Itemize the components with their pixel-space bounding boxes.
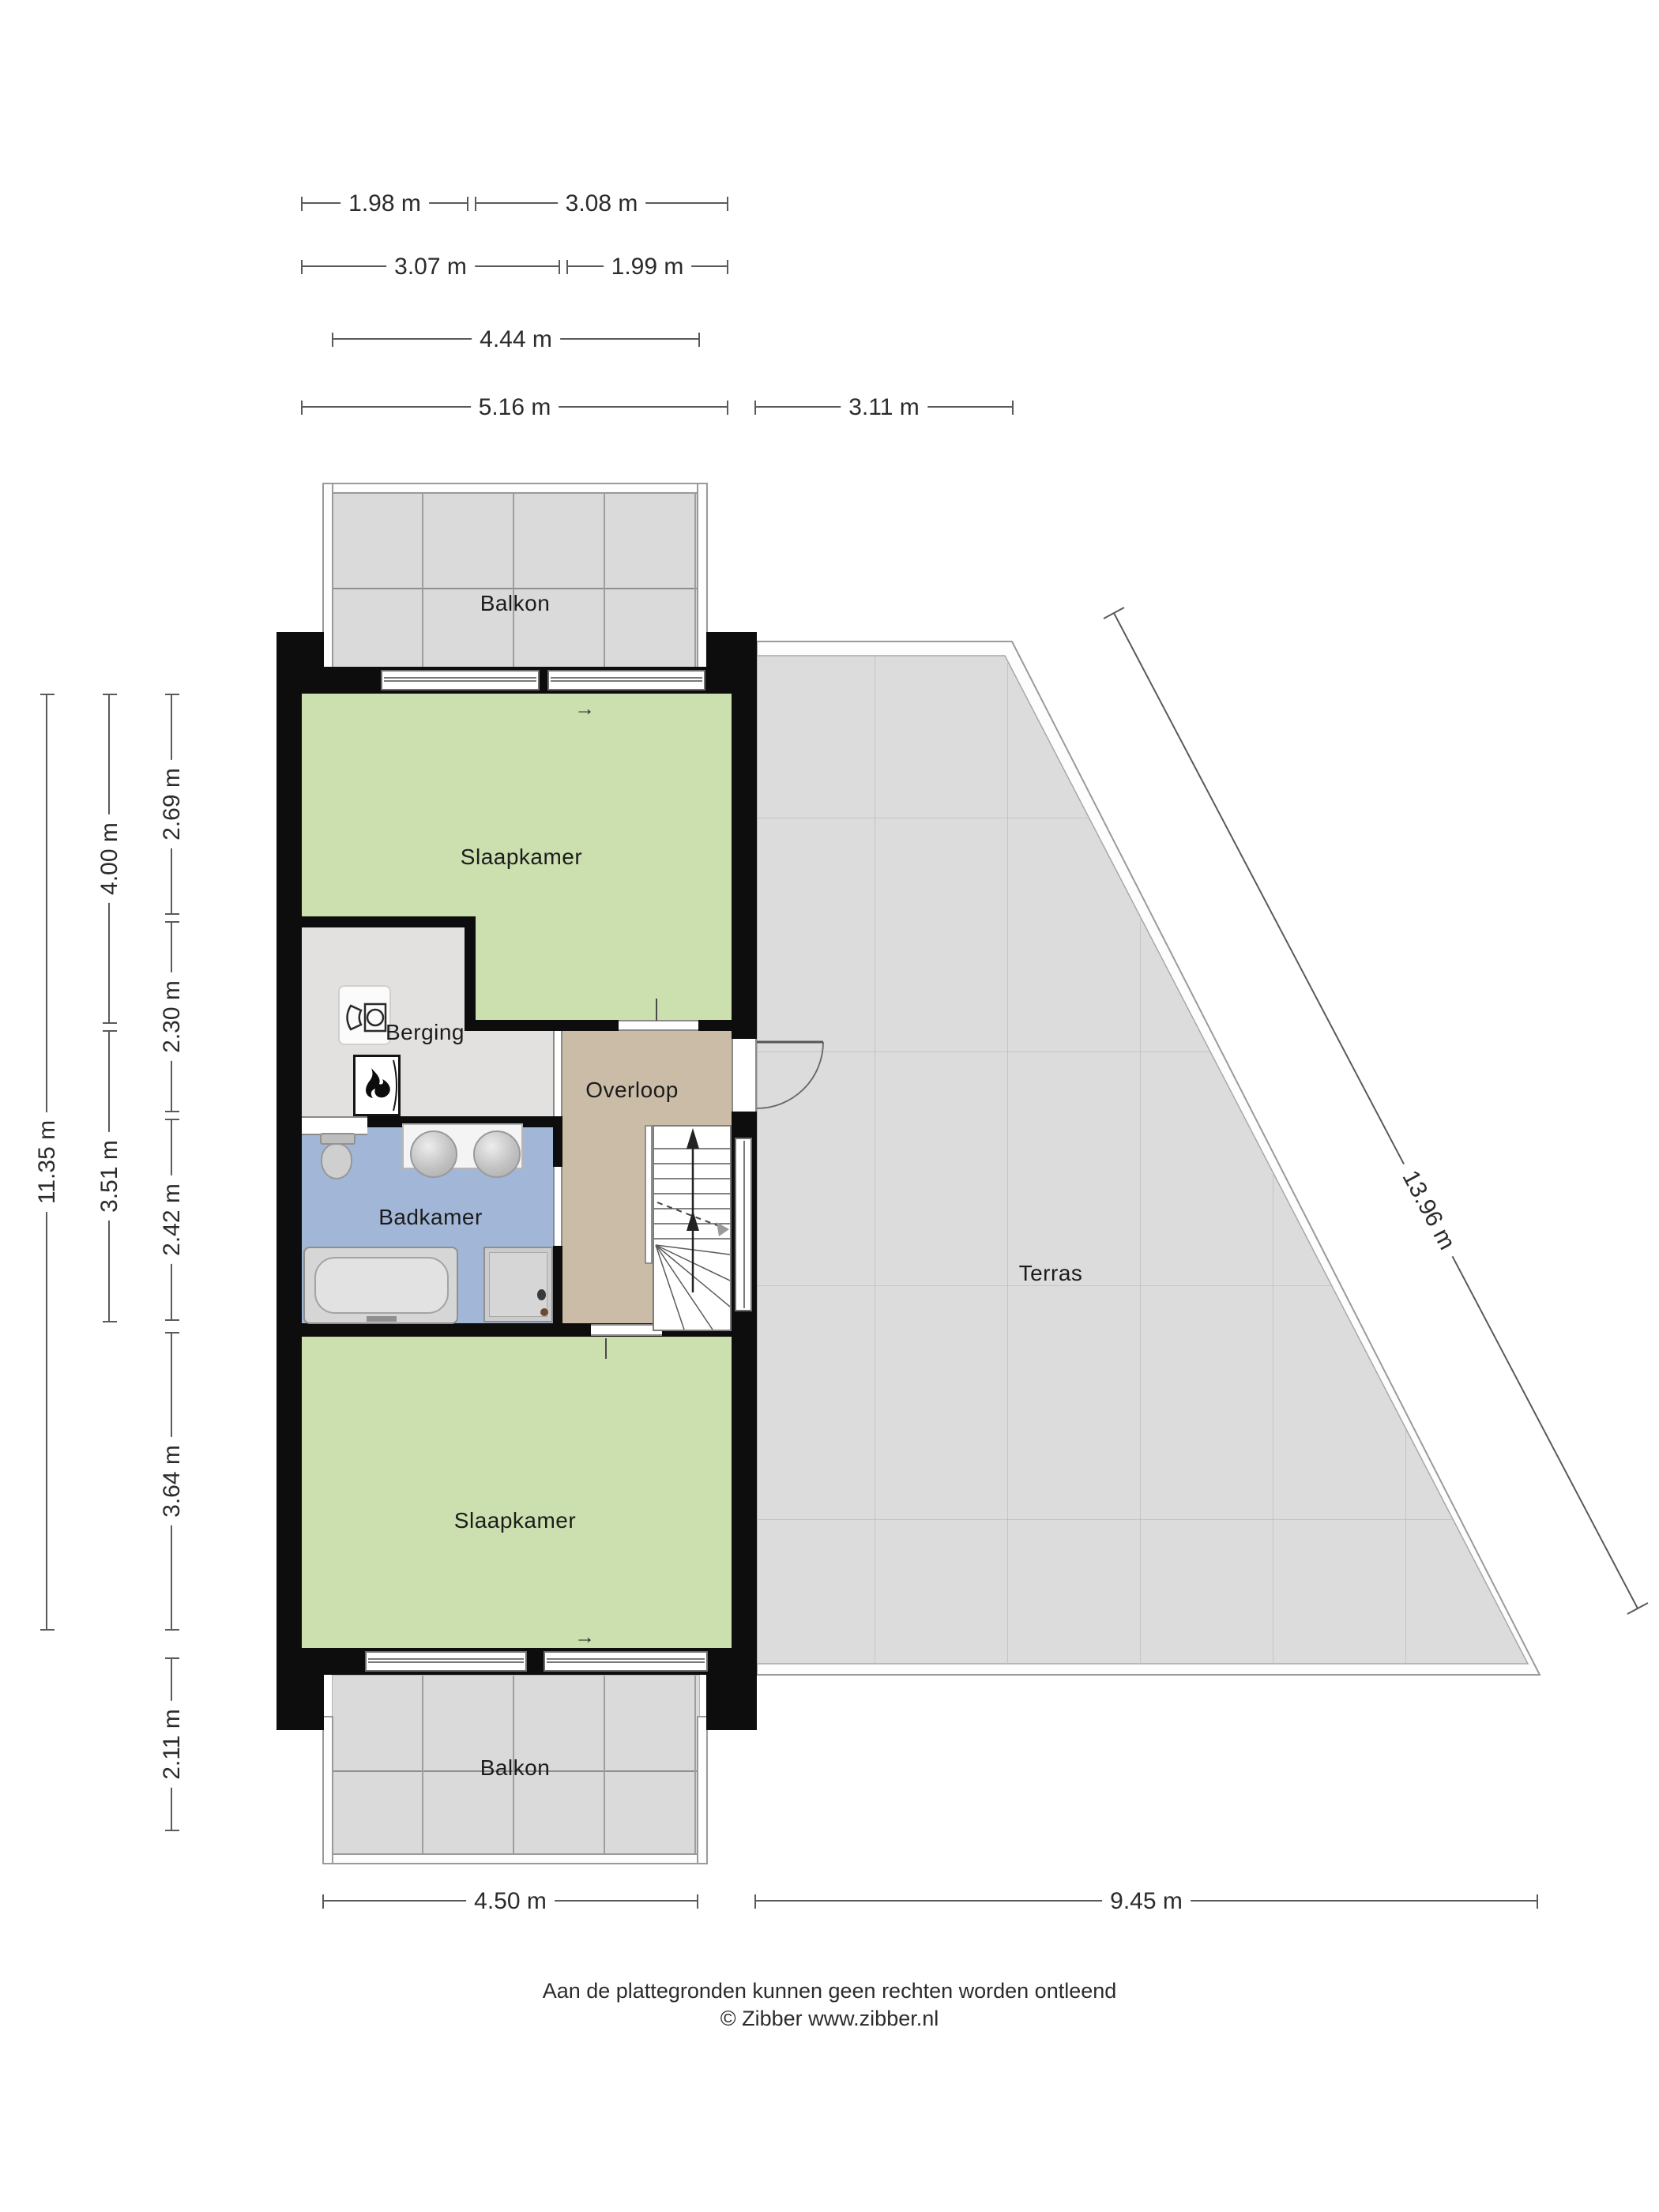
dimension-top-2: 3.08 m: [475, 202, 728, 204]
window-opening-arrow-icon-top: →: [574, 697, 595, 721]
footer-copyright: © Zibber www.zibber.nl: [0, 2007, 1659, 2031]
window-bottom-right: [544, 1651, 708, 1672]
room-label-balkon-top: Balkon: [480, 591, 551, 616]
room-slaapkamer-bottom: [302, 1337, 732, 1648]
door-opening-berging-overloop: [553, 1031, 562, 1116]
window-top-right: [547, 670, 705, 690]
room-label-berging: Berging: [386, 1020, 465, 1045]
balcony-top-floor: [332, 492, 700, 673]
room-label-terras: Terras: [1019, 1261, 1083, 1286]
dimension-left-269: 2.69 m: [171, 694, 172, 915]
dimension-left-211: 2.11 m: [171, 1657, 172, 1831]
door-opening-slaapkamer-bottom: [591, 1324, 662, 1336]
toilet-icon: [321, 1143, 352, 1179]
room-label-balkon-bottom: Balkon: [480, 1755, 551, 1781]
dimension-left-total: 11.35 m: [46, 694, 47, 1631]
balcony-bottom-railing: [322, 1853, 708, 1864]
boiler-flame-icon: [353, 1055, 401, 1116]
footer-disclaimer: Aan de plattegronden kunnen geen rechten…: [0, 1979, 1659, 2003]
dimension-top-7: 3.11 m: [754, 406, 1014, 408]
room-slaapkamer-top-extension: [476, 916, 732, 1031]
dimension-top-6: 5.16 m: [301, 406, 728, 408]
dimension-top-1: 1.98 m: [301, 202, 468, 204]
dimension-bottom-2: 9.45 m: [754, 1900, 1538, 1902]
balcony-top-railing: [322, 483, 708, 494]
dimension-top-3: 3.07 m: [301, 265, 560, 267]
dimension-left-351: 3.51 m: [108, 1030, 110, 1322]
washing-machine-icon: [338, 985, 391, 1045]
balcony-bottom-railing-right: [697, 1716, 708, 1864]
shower-icon: [483, 1247, 553, 1322]
wall-segment-corner-tr: [706, 632, 757, 671]
wall-segment-separator-b: [553, 1246, 562, 1323]
wall-segment-left: [276, 632, 302, 1730]
bathtub-icon: [303, 1247, 458, 1324]
wall-segment-notch-horizontal: [302, 916, 476, 927]
room-label-badkamer: Badkamer: [378, 1205, 483, 1230]
washbasin-icon: [473, 1130, 521, 1178]
window-stairwell: [735, 1138, 752, 1311]
balcony-bottom-railing-left: [322, 1716, 333, 1864]
dimension-left-400: 4.00 m: [108, 694, 110, 1024]
wall-segment-corner-bl: [276, 1673, 324, 1730]
dimension-top-4: 1.99 m: [566, 265, 728, 267]
door-opening-slaapkamer-overloop: [619, 1020, 698, 1031]
door-tick-mark: [656, 999, 657, 1021]
window-top-left: [381, 670, 540, 690]
dimension-left-242: 2.42 m: [171, 1119, 172, 1321]
washbasin-icon: [410, 1130, 457, 1178]
door-tick-mark: [605, 1338, 607, 1359]
stairs-up-arrow-icon: [654, 1127, 730, 1330]
floorplan-page: 13.96 m Terras Balkon Balkon → →: [0, 0, 1659, 2212]
door-opening-badkamer-overloop: [553, 1167, 562, 1246]
dimension-left-364: 3.64 m: [171, 1332, 172, 1631]
room-slaapkamer-top: [302, 694, 732, 927]
stairs-handrail: [645, 1125, 653, 1264]
balcony-top-railing-left: [322, 483, 333, 675]
window-bottom-left: [365, 1651, 527, 1672]
dimension-bottom-1: 4.50 m: [322, 1900, 698, 1902]
room-label-slaapkamer-top: Slaapkamer: [461, 845, 582, 870]
staircase: [653, 1125, 732, 1331]
door-opening-terras: [732, 1039, 757, 1112]
wall-segment-notch-vertical: [465, 916, 476, 1031]
room-label-slaapkamer-bottom: Slaapkamer: [454, 1508, 576, 1533]
window-opening-arrow-icon-bottom: →: [574, 1625, 595, 1650]
wall-segment-corner-br: [706, 1673, 757, 1730]
dimension-top-5: 4.44 m: [332, 338, 700, 340]
room-label-overloop: Overloop: [585, 1078, 679, 1103]
wall-segment-corner-tl: [276, 632, 324, 671]
terrace-area: [743, 585, 1659, 1706]
dimension-left-230: 2.30 m: [171, 921, 172, 1112]
